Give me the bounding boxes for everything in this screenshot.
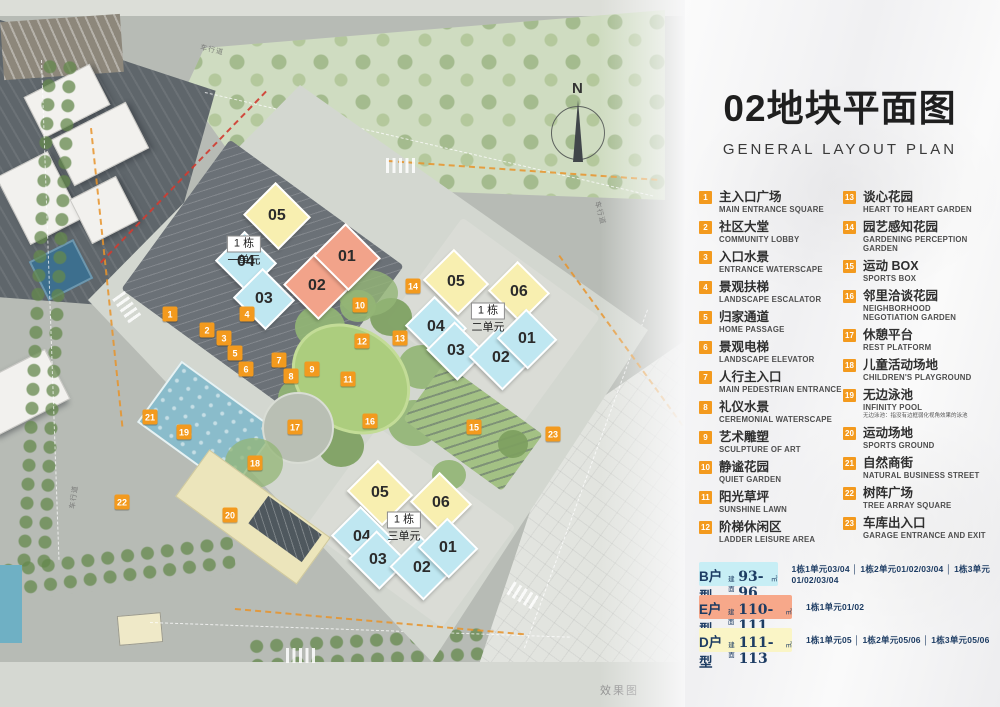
unit-area-prefix: 建面	[728, 606, 737, 626]
map-marker-10: 10	[353, 298, 368, 313]
legend-item: 6景观电梯LANDSCAPE ELEVATOR	[699, 340, 851, 364]
legend-item: 9艺术雕塑SCULPTURE OF ART	[699, 430, 851, 454]
map-marker-7: 7	[272, 353, 287, 368]
map-marker-23: 23	[546, 427, 561, 442]
legend-label-en: LANDSCAPE ELEVATOR	[719, 355, 851, 364]
legend-label-en: INFINITY POOL	[863, 403, 995, 412]
building-number: 05	[371, 484, 389, 502]
legend-label-en: GARDENING PERCEPTION GARDEN	[863, 235, 995, 253]
legend-item: 22树阵广场TREE ARRAY SQUARE	[843, 486, 995, 510]
legend-label-zh: 主入口广场	[719, 190, 851, 204]
legend-label-zh: 儿童活动场地	[863, 358, 995, 372]
map-marker-9: 9	[305, 362, 320, 377]
legend-label-zh: 运动场地	[863, 426, 995, 440]
legend-item: 7人行主入口MAIN PEDESTRIAN ENTRANCE	[699, 370, 851, 394]
legend-label-zh: 景观扶梯	[719, 280, 851, 294]
legend-item: 5归家通道HOME PASSAGE	[699, 310, 851, 334]
map-marker-4: 4	[240, 307, 255, 322]
legend-number-badge: 23	[843, 517, 856, 530]
legend-item: 19无边泳池INFINITY POOL无边泳池：指没有边框弱化视角效果的泳池	[843, 388, 995, 420]
legend-number-badge: 20	[843, 427, 856, 440]
cluster-unit-name: 一单元	[227, 255, 261, 267]
legend-number-badge: 3	[699, 251, 712, 264]
legend-number-badge: 11	[699, 491, 712, 504]
unit-area-unit: ㎡	[786, 606, 793, 616]
legend-label-en: HOME PASSAGE	[719, 325, 851, 334]
legend-number-badge: 13	[843, 191, 856, 204]
cluster-building-no: 1 栋	[227, 236, 261, 253]
legend-number-badge: 22	[843, 487, 856, 500]
unit-area-unit: ㎡	[786, 639, 793, 649]
legend-number-badge: 7	[699, 371, 712, 384]
legend-label-zh: 运动 BOX	[863, 259, 995, 273]
legend-label-en: LANDSCAPE ESCALATOR	[719, 295, 851, 304]
legend-item: 14园艺感知花园GARDENING PERCEPTION GARDEN	[843, 220, 995, 253]
map-marker-13: 13	[393, 331, 408, 346]
legend-item: 15运动 BOXSPORTS BOX	[843, 259, 995, 283]
legend-label-en: LADDER LEISURE AREA	[719, 535, 851, 544]
map-marker-3: 3	[217, 331, 232, 346]
cluster-building-no: 1 栋	[387, 512, 421, 529]
legend-label-zh: 景观电梯	[719, 340, 851, 354]
building-number: 03	[255, 290, 273, 308]
cluster-unit-name: 二单元	[471, 322, 505, 334]
legend-label-zh: 休憩平台	[863, 328, 995, 342]
building-number: 01	[518, 330, 536, 348]
map-marker-2: 2	[200, 323, 215, 338]
unit-type-legend: B户型建面93-96㎡1栋1单元03/04 │ 1栋2单元01/02/03/04…	[699, 562, 999, 661]
unit-assignments: 1栋1单元03/04 │ 1栋2单元01/02/03/04 │ 1栋3单元01/…	[792, 563, 999, 585]
unit-name: D户型	[699, 631, 725, 671]
legend-item: 11阳光草坪SUNSHINE LAWN	[699, 490, 851, 514]
legend-label-en: CEREMONIAL WATERSCAPE	[719, 415, 851, 424]
legend-label-zh: 艺术雕塑	[719, 430, 851, 444]
title-block: 02地块平面图 GENERAL LAYOUT PLAN	[690, 78, 990, 158]
legend-item: 4景观扶梯LANDSCAPE ESCALATOR	[699, 280, 851, 304]
legend-label-zh: 归家通道	[719, 310, 851, 324]
map-marker-16: 16	[363, 414, 378, 429]
site-plan-map: 车行道 车行道 车行道 N 05040302010506040302010506…	[0, 0, 700, 707]
legend-label-en: TREE ARRAY SQUARE	[863, 501, 995, 510]
legend-label-en: SPORTS GROUND	[863, 441, 995, 450]
map-marker-22: 22	[115, 495, 130, 510]
legend-item: 12阶梯休闲区LADDER LEISURE AREA	[699, 520, 851, 544]
legend-number-badge: 15	[843, 260, 856, 273]
map-marker-12: 12	[355, 334, 370, 349]
legend-label-zh: 礼仪水景	[719, 400, 851, 414]
unit-assignments: 1栋1单元05 │ 1栋2单元05/06 │ 1栋3单元05/06	[806, 634, 990, 646]
legend-number-badge: 1	[699, 191, 712, 204]
map-marker-11: 11	[341, 372, 356, 387]
legend-item: 16邻里洽谈花园NEIGHBORHOOD NEGOTIATION GARDEN	[843, 289, 995, 322]
legend-number-badge: 9	[699, 431, 712, 444]
legend-label-zh: 阳光草坪	[719, 490, 851, 504]
building-number: 01	[338, 248, 356, 266]
legend-label-en: NEIGHBORHOOD NEGOTIATION GARDEN	[863, 304, 995, 322]
legend-number-badge: 19	[843, 389, 856, 402]
legend-label-zh: 谈心花园	[863, 190, 995, 204]
legend-label-zh: 社区大堂	[719, 220, 851, 234]
unit-badge: B户型建面93-96㎡	[699, 562, 778, 586]
legend-item: 8礼仪水景CEREMONIAL WATERSCAPE	[699, 400, 851, 424]
legend-label-zh: 自然商街	[863, 456, 995, 470]
building-number: 03	[447, 342, 465, 360]
building-number: 02	[308, 277, 326, 295]
legend-number-badge: 14	[843, 221, 856, 234]
legend-label-zh: 车库出入口	[863, 516, 995, 530]
map-marker-6: 6	[239, 362, 254, 377]
legend-item: 23车库出入口GARAGE ENTRANCE AND EXIT	[843, 516, 995, 540]
legend-label-en: HEART TO HEART GARDEN	[863, 205, 995, 214]
page-title: 02地块平面图	[690, 78, 990, 132]
cluster-label: 1 栋二单元	[471, 301, 505, 334]
legend-label-zh: 静谧花园	[719, 460, 851, 474]
legend-number-badge: 21	[843, 457, 856, 470]
legend-item: 10静谧花园QUIET GARDEN	[699, 460, 851, 484]
map-marker-8: 8	[284, 369, 299, 384]
legend-label-zh: 树阵广场	[863, 486, 995, 500]
building-number: 01	[439, 539, 457, 557]
buildings-layer: 05040302010506040302010506040302011 栋一单元…	[0, 0, 700, 707]
legend-label-en: QUIET GARDEN	[719, 475, 851, 484]
legend-label-zh: 阶梯休闲区	[719, 520, 851, 534]
legend-item: 13谈心花园HEART TO HEART GARDEN	[843, 190, 995, 214]
building-number: 05	[447, 273, 465, 291]
unit-badge: D户型建面111-113㎡	[699, 628, 792, 652]
unit-area-prefix: 建面	[728, 573, 737, 593]
map-marker-15: 15	[467, 420, 482, 435]
legend-label-zh: 园艺感知花园	[863, 220, 995, 234]
building-number: 02	[492, 349, 510, 367]
legend-label-zh: 邻里洽谈花园	[863, 289, 995, 303]
legend-label-en: CHILDREN'S PLAYGROUND	[863, 373, 995, 382]
legend-item: 21自然商街NATURAL BUSINESS STREET	[843, 456, 995, 480]
map-marker-1: 1	[163, 307, 178, 322]
legend-label-en: SPORTS BOX	[863, 274, 995, 283]
legend-number-badge: 10	[699, 461, 712, 474]
map-marker-19: 19	[177, 425, 192, 440]
legend-label-en: MAIN PEDESTRIAN ENTRANCE	[719, 385, 851, 394]
map-marker-17: 17	[288, 420, 303, 435]
legend-label-zh: 人行主入口	[719, 370, 851, 384]
unit-row: E户型建面110-111㎡1栋1单元01/02	[699, 595, 999, 619]
legend-number-badge: 18	[843, 359, 856, 372]
legend-number-badge: 16	[843, 290, 856, 303]
map-marker-20: 20	[223, 508, 238, 523]
legend-item: 17休憩平台REST PLATFORM	[843, 328, 995, 352]
unit-area-range: 111-113	[739, 635, 785, 667]
unit-badge: E户型建面110-111㎡	[699, 595, 792, 619]
legend-column-1: 1主入口广场MAIN ENTRANCE SQUARE2社区大堂COMMUNITY…	[699, 190, 851, 550]
map-marker-14: 14	[406, 279, 421, 294]
building-number: 03	[369, 551, 387, 569]
legend-label-en: REST PLATFORM	[863, 343, 995, 352]
legend-label-en: ENTRANCE WATERSCAPE	[719, 265, 851, 274]
legend-label-en: SUNSHINE LAWN	[719, 505, 851, 514]
legend-column-2: 13谈心花园HEART TO HEART GARDEN14园艺感知花园GARDE…	[843, 190, 995, 546]
map-marker-18: 18	[248, 456, 263, 471]
unit-area-prefix: 建面	[728, 639, 737, 659]
page: 车行道 车行道 车行道 N 05040302010506040302010506…	[0, 0, 1000, 707]
map-marker-21: 21	[143, 410, 158, 425]
legend-item: 2社区大堂COMMUNITY LOBBY	[699, 220, 851, 244]
legend-label-en: COMMUNITY LOBBY	[719, 235, 851, 244]
cluster-building-no: 1 栋	[471, 303, 505, 320]
legend-note: 无边泳池：指没有边框弱化视角效果的泳池	[863, 413, 995, 420]
legend-number-badge: 17	[843, 329, 856, 342]
legend-number-badge: 6	[699, 341, 712, 354]
legend-label-zh: 无边泳池	[863, 388, 995, 402]
legend-number-badge: 12	[699, 521, 712, 534]
page-subtitle: GENERAL LAYOUT PLAN	[690, 141, 990, 158]
legend-number-badge: 5	[699, 311, 712, 324]
building-number: 02	[413, 559, 431, 577]
cluster-label: 1 栋一单元	[227, 234, 261, 267]
legend-item: 1主入口广场MAIN ENTRANCE SQUARE	[699, 190, 851, 214]
legend-label-en: GARAGE ENTRANCE AND EXIT	[863, 531, 995, 540]
legend-number-badge: 8	[699, 401, 712, 414]
cluster-unit-name: 三单元	[387, 531, 421, 543]
legend-label-zh: 入口水景	[719, 250, 851, 264]
unit-area-unit: ㎡	[771, 573, 778, 583]
legend-label-en: MAIN ENTRANCE SQUARE	[719, 205, 851, 214]
unit-assignments: 1栋1单元01/02	[806, 601, 864, 613]
building-number: 06	[432, 494, 450, 512]
legend-item: 18儿童活动场地CHILDREN'S PLAYGROUND	[843, 358, 995, 382]
legend-label-en: SCULPTURE OF ART	[719, 445, 851, 454]
legend-number-badge: 4	[699, 281, 712, 294]
map-marker-5: 5	[228, 346, 243, 361]
unit-row: B户型建面93-96㎡1栋1单元03/04 │ 1栋2单元01/02/03/04…	[699, 562, 999, 586]
legend-number-badge: 2	[699, 221, 712, 234]
legend-item: 3入口水景ENTRANCE WATERSCAPE	[699, 250, 851, 274]
building-number: 05	[268, 207, 286, 225]
legend-label-en: NATURAL BUSINESS STREET	[863, 471, 995, 480]
cluster-label: 1 栋三单元	[387, 510, 421, 543]
unit-row: D户型建面111-113㎡1栋1单元05 │ 1栋2单元05/06 │ 1栋3单…	[699, 628, 999, 652]
legend-item: 20运动场地SPORTS GROUND	[843, 426, 995, 450]
building-number: 06	[510, 283, 528, 301]
